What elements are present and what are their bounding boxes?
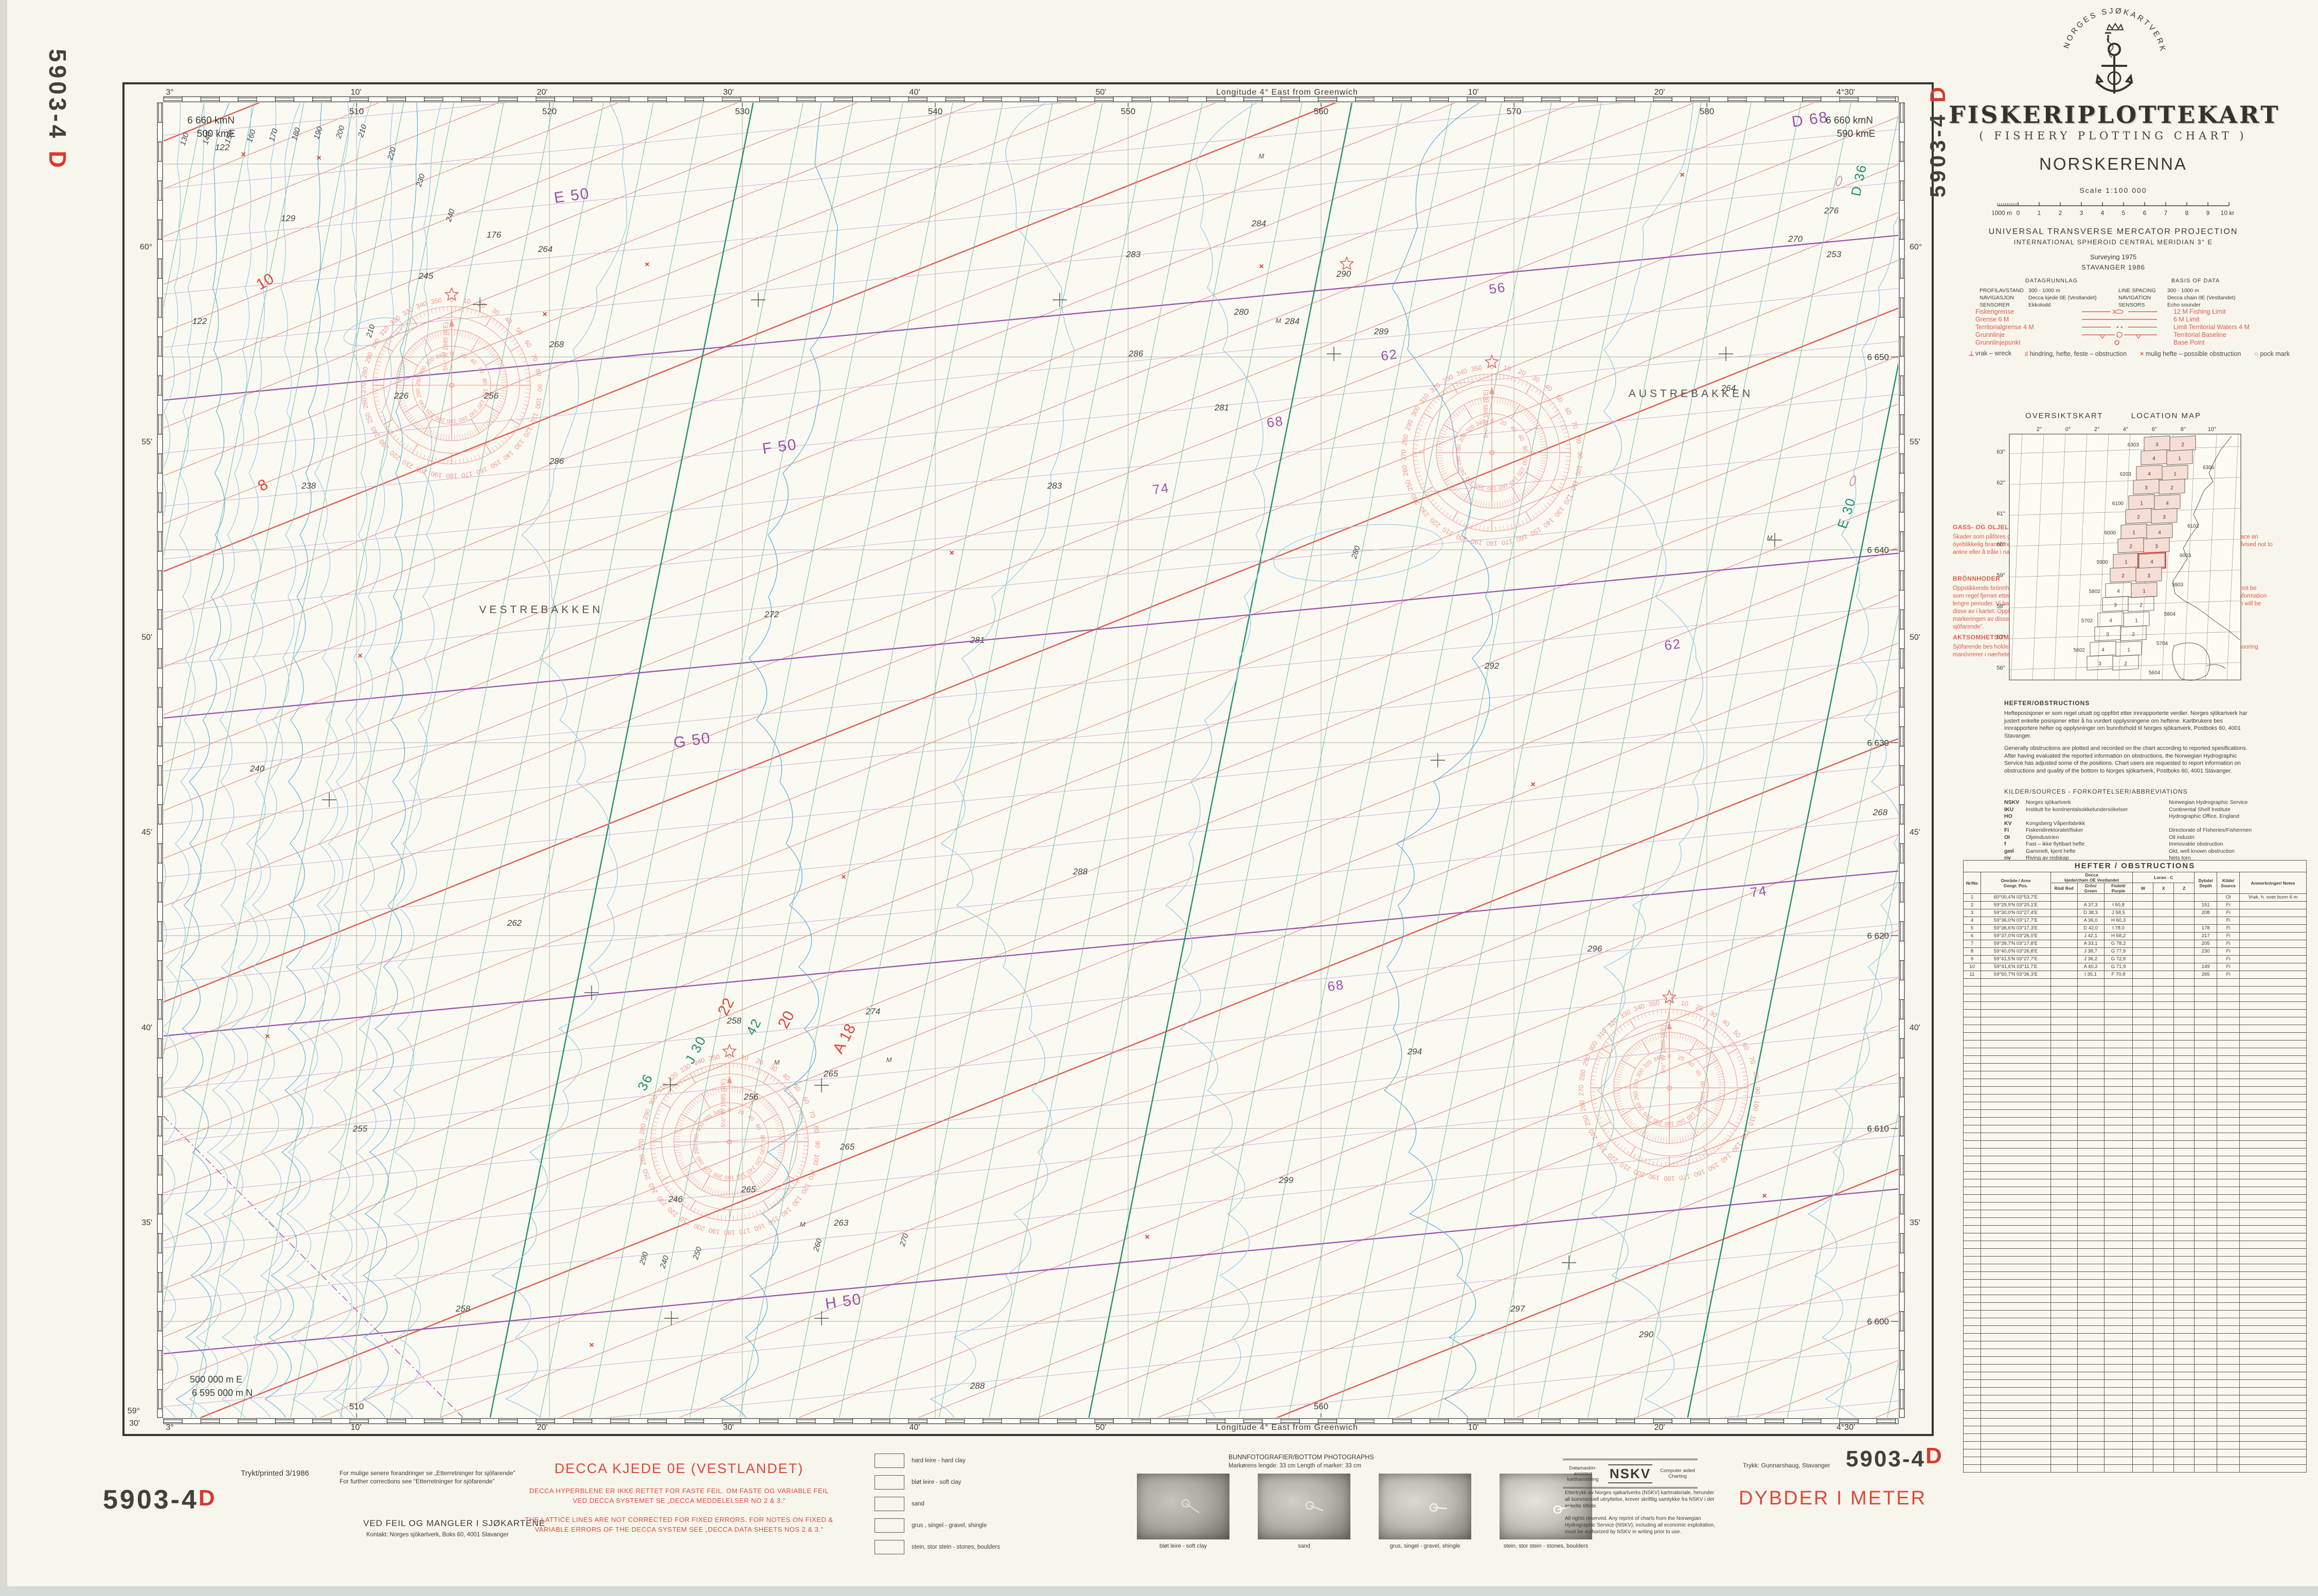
svg-text:55': 55' [1910,438,1920,446]
table-empty-row [1964,1419,2307,1426]
svg-text:×: × [542,310,547,319]
location-map-title: OVERSIKTSKART LOCATION MAP [1949,411,2278,420]
seabed-sample-box [875,1475,904,1490]
svg-text:×: × [1680,171,1684,180]
svg-text:2: 2 [2139,603,2143,608]
svg-text:5704: 5704 [2156,641,2168,647]
seabed-sample-box [875,1518,904,1533]
wreck-icon: ⟂ [1969,350,1975,357]
svg-text:3°: 3° [166,88,173,97]
baseline-line-symbol [2081,331,2158,338]
seabed-sample-box [875,1540,904,1554]
svg-text:1000 m: 1000 m [1992,209,2012,217]
table-empty-row [1964,987,2307,994]
svg-text:×: × [316,154,321,163]
svg-text:90: 90 [814,1141,822,1148]
svg-text:6 640: 6 640 [1867,545,1889,555]
svg-text:9: 9 [2206,209,2210,217]
legend-row: Grense 6 M6 M Limit [1949,315,2304,323]
table-empty-row [1964,1241,2307,1249]
svg-text:62°: 62° [1996,480,2005,486]
table-empty-row [1964,994,2307,1002]
nskv-left-text: Datamaskin-assistert kartframstilling [1563,1465,1603,1482]
projection-label: UNIVERSAL TRANSVERSE MERCATOR PROJECTION [1949,227,2278,237]
svg-text:2: 2 [2124,661,2127,667]
svg-text:265: 265 [823,1069,839,1079]
svg-text:M: M [1276,317,1281,325]
svg-text:122: 122 [215,142,230,152]
svg-text:Longitude 4° East from Greenwi: Longitude 4° East from Greenwich [1216,88,1358,97]
svg-text:265: 265 [840,1142,855,1152]
svg-text:90: 90 [1754,1087,1761,1094]
svg-text:294: 294 [1407,1047,1422,1056]
svg-text:1: 1 [2143,589,2146,595]
surveying-label: Surveying 1975 [1949,253,2278,261]
svg-text:289: 289 [1374,327,1389,336]
legend-row: GrunnlinjeTerritorial Baseline [1949,331,2304,338]
svg-text:4°30': 4°30' [1836,1423,1855,1432]
table-empty-row [1964,1311,2307,1318]
table-empty-row [1964,1295,2307,1303]
seabed-legend-row: stein, stor stein - stones, boulders [875,1540,1000,1554]
photo-caption: stein, stor stein - stones, boulders [1500,1543,1592,1549]
svg-text:4: 4 [2166,501,2169,507]
svg-text:5¼° W 1985 (8'E): 5¼° W 1985 (8'E) [442,322,449,371]
svg-text:20': 20' [537,88,548,97]
obstructions-table: HEFTER / OBSTRUCTIONS Nr/No Område / Are… [1963,860,2307,1473]
svg-text:255: 255 [352,1124,368,1134]
svg-text:80: 80 [1521,445,1528,453]
table-empty-row [1964,1357,2307,1365]
possible-icon: × [2140,350,2146,357]
table-empty-row [1964,1465,2307,1473]
svg-text:256: 256 [484,391,499,401]
pock-icon: ○ [2254,350,2260,357]
pock-symbol-item: ○ pock mark [2254,350,2290,357]
svg-text:283: 283 [1126,249,1141,259]
svg-text:20': 20' [537,1423,548,1432]
legend-row: Fiskerigrense12 M Fishing Limit [1949,308,2304,315]
svg-text:263: 263 [833,1218,849,1228]
svg-text:290: 290 [1638,1330,1654,1339]
table-row: 759°39,7'N 03°17,8'EA 33,1G 78,2205Fi [1964,940,2307,948]
svg-text:6 595 000 m N: 6 595 000 m N [192,1388,253,1398]
table-empty-row [1964,1457,2307,1465]
svg-text:1: 1 [2135,618,2138,624]
svg-text:238: 238 [301,481,316,491]
table-empty-row [1964,1164,2307,1172]
table-row: 359°30,0'N 03°27,4'ED 38,3J 58,5208Fi [1964,909,2307,917]
svg-text:10': 10' [351,88,362,97]
location-map-svg: 2°0°2°4°6°8°10°63°62°61°60°59°58°57°56°3… [1994,424,2251,691]
table-empty-row [1964,1403,2307,1411]
basis-of-data-row: NAVIGASJONDecca kjede 0E (Vestlandet)NAV… [1980,294,2268,301]
svg-text:292: 292 [1484,661,1500,671]
svg-text:258: 258 [726,1016,742,1026]
svg-text:5602: 5602 [2074,648,2085,653]
svg-text:68: 68 [1326,977,1345,994]
scale-bar-svg: 1000 m012345678910 km [1992,200,2234,220]
decca-note-no: DECCA HYPERBLENE ER IKKE RETTET FOR FAST… [525,1486,833,1505]
svg-text:×: × [841,873,846,882]
plain-line-symbol [2081,316,2158,323]
svg-text:M: M [886,1056,892,1064]
table-empty-row [1964,1233,2307,1241]
svg-text:510: 510 [349,106,364,116]
svg-text:62: 62 [1663,636,1682,653]
svg-text:1: 1 [2125,560,2128,565]
table-empty-row [1964,1179,2307,1187]
table-empty-row [1964,1141,2307,1149]
sheet-number-bottom-right: 5903-4D [1846,1443,1943,1472]
abbreviation-row: FiFiskeridirektoratet/fiskerDirectorate … [2004,827,2292,834]
svg-text:62: 62 [1380,346,1399,364]
svg-text:61°: 61° [1996,511,2005,517]
svg-text:AUSTREBAKKEN: AUSTREBAKKEN [1629,388,1753,400]
svg-text:6 620: 6 620 [1867,931,1889,941]
svg-text:×: × [358,652,362,660]
fish-line-symbol [2081,308,2158,315]
basis-of-data-row: PROFILAVSTAND300 - 1000 mLINE SPACING300… [1980,287,2268,294]
svg-text:5903: 5903 [2172,582,2184,588]
svg-text:4°30': 4°30' [1836,88,1855,97]
sheet-number-margin-left: 5903-4 D [44,49,72,255]
svg-text:6306: 6306 [2203,465,2215,471]
svg-text:6203: 6203 [2120,472,2132,477]
svg-text:6 600: 6 600 [1867,1317,1889,1326]
svg-text:3: 3 [2145,486,2148,491]
table-empty-row [1964,1133,2307,1141]
svg-text:×: × [1530,780,1535,789]
svg-text:6103: 6103 [2187,524,2199,529]
corrections-note: For mulige senere forandringer se „Etter… [340,1469,515,1485]
svg-text:5804: 5804 [2164,612,2176,617]
svg-text:2: 2 [2137,515,2140,521]
svg-text:80: 80 [1574,436,1583,444]
abbreviation-row: IKUInstitutt for kontinentalsokkelunders… [2004,806,2292,814]
table-empty-row [1964,1210,2307,1218]
depths-in-metres-label: DYBDER I METER [1739,1487,1927,1510]
table-empty-row [1964,1380,2307,1388]
table-empty-row [1964,1257,2307,1264]
seabed-legend-row: grus , singel - gravel, shingle [875,1518,1000,1533]
legend-row: GrunnlinjepunktBase Point [1949,338,2304,346]
svg-text:6 660 kmN: 6 660 kmN [187,115,235,126]
abbreviation-row: gmlGammelt, kjent hefteOld, well known o… [2004,848,2292,855]
svg-text:59°: 59° [1996,572,2005,579]
location-map: 2°0°2°4°6°8°10°63°62°61°60°59°58°57°56°3… [1994,424,2251,693]
table-empty-row [1964,1149,2307,1156]
svg-text:281: 281 [1214,403,1229,413]
svg-text:2: 2 [2132,632,2135,638]
table-row: 459°36,0'N 03°17,7'EA 36,0H 60,3Fi [1964,917,2307,925]
svg-text:35': 35' [141,1218,152,1227]
svg-text:270: 270 [1788,234,1803,244]
svg-text:5: 5 [2122,209,2126,217]
sheet-id: 5903-4 [44,49,71,141]
svg-text:268: 268 [549,339,564,349]
decca-chain-title: DECCA KJEDE 0E (VESTLANDET) [525,1461,833,1477]
svg-text:45': 45' [141,828,152,837]
errors-heading: VED FEIL OG MANGLER I SJØKARTENE [363,1518,545,1529]
obstruction-symbol-item: ♯ hindring, hefte, feste – obstruction [2025,350,2127,357]
svg-text:590 kmE: 590 kmE [1837,129,1876,139]
chart-title: FISKERIPLOTTEKART [1949,101,2278,129]
table-empty-row [1964,1303,2307,1311]
svg-text:284: 284 [1285,316,1299,326]
svg-text:63°: 63° [1996,449,2005,455]
bottom-photo [1379,1474,1471,1539]
table-empty-row [1964,1434,2307,1442]
svg-text:M: M [1259,152,1264,160]
svg-text:80: 80 [534,368,543,377]
svg-text:0: 0 [727,1052,731,1060]
table-empty-row [1964,1071,2307,1079]
svg-text:×: × [1259,262,1263,271]
abbreviations-list: NSKVNorges sjökartverkNorwegian Hydrogra… [2004,799,2292,862]
svg-text:510: 510 [349,1402,364,1411]
errors-contact: Kontakt: Norges sjökartverk, Boks 60, 40… [366,1532,509,1538]
svg-text:6 630: 6 630 [1867,738,1889,748]
svg-text:1: 1 [2132,530,2135,536]
svg-text:60°: 60° [1910,243,1922,252]
svg-text:60°: 60° [140,243,152,252]
table-empty-row [1964,1041,2307,1048]
legend-row: Territorialgrense 4 MLimit Territorial W… [1949,323,2304,331]
svg-text:180: 180 [724,1229,735,1236]
edition-label: STAVANGER 1986 [1949,263,2278,271]
sources-heading: KILDER/SOURCES - FORKORTELSER/ABBREVIATI… [2004,788,2188,795]
sheet-number-bottom-left: 5903-4D [103,1484,217,1515]
table-row: 859°40,0'N 03°26,8'EJ 38,7G 77,9230Fi [1964,948,2307,956]
svg-text:6 650: 6 650 [1867,352,1889,362]
bottom-photos-title: BUNNFOTOGRAFIER/BOTTOM PHOTOGRAPHS [1228,1454,1374,1461]
sheet-number-margin-right: 5903-4 D [1925,0,1950,198]
table-empty-row [1964,1388,2307,1395]
nskv-right-text: Computer aided Charting [1657,1468,1698,1479]
table-empty-row [1964,1442,2307,1449]
svg-text:68: 68 [1265,413,1285,431]
svg-text:M: M [774,1059,780,1066]
seabed-sample-box [875,1454,904,1468]
svg-text:122: 122 [192,316,207,326]
chart-subtitle: ( FISHERY PLOTTING CHART ) [1949,130,2278,142]
svg-text:3: 3 [2106,632,2109,638]
svg-text:8: 8 [2185,209,2189,217]
svg-text:VESTREBAKKEN: VESTREBAKKEN [479,604,603,616]
svg-text:1: 1 [2140,501,2143,507]
svg-text:50': 50' [141,633,152,642]
svg-text:270: 270 [1400,450,1407,461]
svg-text:60°: 60° [1996,542,2005,548]
svg-text:×: × [1145,1233,1149,1242]
table-empty-row [1964,979,2307,987]
dots-line-symbol [2081,324,2158,331]
table-empty-row [1964,1280,2307,1287]
table-empty-row [1964,1411,2307,1419]
svg-text:10 km: 10 km [2221,209,2234,217]
svg-text:0°: 0° [2065,426,2071,433]
table-empty-row [1964,1056,2307,1064]
svg-text:57°: 57° [1996,634,2005,640]
svg-text:58°: 58° [1996,603,2005,609]
svg-text:530: 530 [735,106,750,116]
svg-text:5¼° W 1985 (8'E): 5¼° W 1985 (8'E) [1482,390,1489,438]
svg-text:1: 1 [2127,648,2130,653]
svg-text:240: 240 [249,764,265,774]
svg-text:286: 286 [549,456,564,466]
svg-text:270: 270 [1577,1085,1585,1096]
table-empty-row [1964,1095,2307,1102]
svg-text:10: 10 [1680,999,1689,1008]
svg-text:4°: 4° [2123,426,2129,433]
table-empty-row [1964,1395,2307,1403]
obstruction-icon: ♯ [2025,350,2030,357]
svg-text:4: 4 [2101,648,2105,653]
scale-bar: 1000 m012345678910 km [1992,200,2234,220]
table-empty-row [1964,1110,2307,1118]
svg-text:6100: 6100 [2112,501,2124,507]
svg-text:2°: 2° [2094,426,2100,433]
svg-text:270: 270 [360,382,367,393]
svg-text:0: 0 [2017,209,2020,217]
oversiktskart-label: OVERSIKTSKART [2025,411,2103,420]
svg-text:35': 35' [1910,1218,1920,1227]
svg-text:560: 560 [1314,106,1328,116]
svg-text:129: 129 [281,213,296,223]
seabed-legend: hard leire - hard claybløt leire - soft … [875,1454,1000,1562]
obstructions-para-no: Hefteposisjoner er som regel utsatt og o… [2004,710,2251,740]
datagrunnlag-heading: DATAGRUNNLAG [1980,278,2124,284]
svg-text:3: 3 [2114,603,2117,608]
svg-text:540: 540 [928,106,942,116]
svg-text:4: 4 [2150,560,2153,565]
table-empty-row [1964,1002,2307,1010]
svg-text:50': 50' [1096,1423,1107,1432]
basis-of-data-heading: BASIS OF DATA [2124,278,2268,284]
svg-text:272: 272 [764,609,779,619]
table-empty-row [1964,1079,2307,1087]
printer-credit: Trykk: Gunnarshaug, Stavanger [1743,1462,1830,1469]
svg-text:0: 0 [450,296,453,303]
table-empty-row [1964,1048,2307,1056]
table-empty-row [1964,1326,2307,1334]
svg-text:560: 560 [1314,1402,1328,1411]
copyright-en: All rights reserved. Any reprint of char… [1565,1515,1719,1535]
svg-text:246: 246 [668,1194,683,1204]
table-row: 160°00,4'N 03°53,7'EOIVrak, h. over bunn… [1964,894,2307,902]
limits-legend: Fiskerigrense12 M Fishing LimitGrense 6 … [1949,308,2304,346]
svg-text:500 kmE: 500 kmE [197,129,236,139]
svg-text:×: × [1762,1192,1767,1200]
svg-text:268: 268 [1873,808,1888,817]
svg-text:5900: 5900 [2097,560,2109,565]
svg-text:520: 520 [542,106,557,116]
svg-text:580: 580 [1700,106,1714,116]
svg-text:7: 7 [2164,209,2168,217]
svg-text:288: 288 [970,1381,985,1391]
svg-text:296: 296 [1587,944,1602,954]
nskv-logo-box: Datamaskin-assistert kartframstilling NS… [1563,1459,1698,1489]
abbreviation-row: KVKongsberg Våpenfabrikk [2004,820,2292,828]
svg-text:10: 10 [740,1053,749,1062]
svg-text:500 000 m E: 500 000 m E [190,1374,242,1385]
svg-text:299: 299 [1278,1175,1294,1185]
wreck-symbol-item: ⟂ vrak – wreck [1969,350,2011,357]
svg-text:3: 3 [2147,573,2150,579]
svg-text:×: × [241,150,245,159]
svg-text:5½° W 1985 (8'E): 5½° W 1985 (8'E) [1660,1025,1667,1073]
svg-text:8°: 8° [2181,426,2186,433]
table-empty-row [1964,1017,2307,1025]
table-empty-row [1964,1087,2307,1095]
table-title: HEFTER / OBSTRUCTIONS [1964,860,2307,872]
svg-text:5802: 5802 [2089,589,2101,595]
svg-text:30': 30' [129,1419,140,1428]
table-empty-row [1964,1195,2307,1203]
chart-sheet: 0010202030404050606070808090100100110120… [0,0,2318,1596]
svg-text:180: 180 [446,472,457,480]
svg-text:264: 264 [538,244,552,254]
svg-text:×: × [265,1032,270,1041]
table-empty-row [1964,1349,2307,1357]
obstructions-para-en: Generally obstructions are plotted and r… [2004,745,2251,775]
svg-text:5604: 5604 [2149,670,2161,676]
bottom-photos-subtitle: Markørens lengde: 33 cm Length of marker… [1228,1463,1361,1469]
svg-text:10': 10' [1468,88,1479,97]
svg-text:2: 2 [2129,544,2132,550]
obstruction-symbols-legend: ⟂ vrak – wreck♯ hindring, hefte, feste –… [1969,350,2309,357]
svg-text:4: 4 [2117,589,2120,595]
svg-text:10: 10 [462,296,471,305]
decca-note: DECCA KJEDE 0E (VESTLANDET) DECCA HYPERB… [525,1461,833,1534]
svg-text:3: 3 [2080,209,2083,217]
table-row: 1159°50,7'N 03°36,3'EI 35,1F 70,8265Fi [1964,971,2307,979]
svg-text:2: 2 [2121,573,2125,579]
svg-text:40': 40' [141,1024,152,1032]
table-empty-row [1964,1226,2307,1233]
location-map-label: LOCATION MAP [2131,411,2201,420]
svg-text:80: 80 [1752,1071,1760,1080]
table-empty-row [1964,1218,2307,1226]
svg-text:Longitude 4° East from Greenwi: Longitude 4° East from Greenwich [1216,1423,1358,1432]
svg-text:80: 80 [812,1125,821,1134]
svg-text:6303: 6303 [2128,442,2139,448]
svg-text:56°: 56° [1996,665,2005,671]
table-empty-row [1964,1033,2307,1041]
table-empty-row [1964,1125,2307,1133]
svg-text:×: × [949,549,954,558]
svg-text:2: 2 [2170,486,2173,491]
table-empty-row [1964,1287,2307,1295]
svg-text:50': 50' [1096,88,1107,97]
table-empty-row [1964,1449,2307,1457]
svg-text:288: 288 [1073,867,1088,876]
svg-text:290: 290 [1336,269,1351,279]
svg-text:40': 40' [910,88,920,97]
svg-text:56: 56 [1488,279,1507,297]
svg-text:253: 253 [1826,249,1842,259]
abbreviation-row: NSKVNorges sjökartverkNorwegian Hydrogra… [2004,799,2292,806]
svg-text:59°: 59° [128,1407,140,1415]
spheroid-label: INTERNATIONAL SPHEROID CENTRAL MERIDIAN … [1949,239,2278,246]
table-empty-row [1964,1264,2307,1272]
svg-text:265: 265 [741,1185,756,1194]
possible-symbol-item: × mulig hefte – possible obstruction [2140,350,2241,357]
svg-text:10°: 10° [2208,426,2217,433]
svg-text:×: × [589,1341,594,1350]
svg-text:283: 283 [1047,481,1062,491]
